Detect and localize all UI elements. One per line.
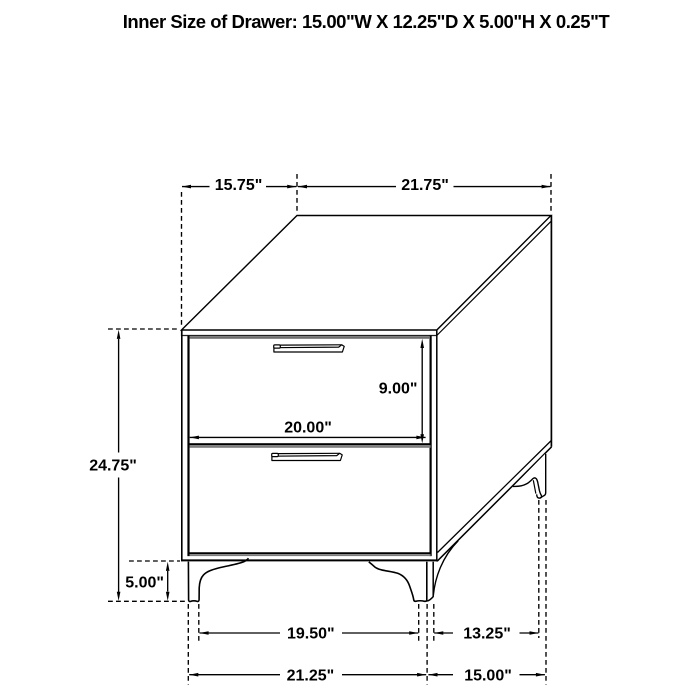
svg-text:Inner Size of Drawer: 15.00"W: Inner Size of Drawer: 15.00"W X 12.25"D … xyxy=(123,11,611,32)
svg-text:20.00": 20.00" xyxy=(284,419,332,436)
svg-text:21.75": 21.75" xyxy=(401,177,449,194)
svg-text:15.00": 15.00" xyxy=(464,668,512,685)
svg-text:24.75": 24.75" xyxy=(89,458,137,475)
svg-text:13.25": 13.25" xyxy=(463,626,511,643)
svg-text:15.75": 15.75" xyxy=(215,177,263,194)
svg-text:21.25": 21.25" xyxy=(287,668,335,685)
svg-text:19.50": 19.50" xyxy=(287,626,335,643)
svg-text:5.00": 5.00" xyxy=(125,575,164,592)
svg-text:9.00": 9.00" xyxy=(379,381,418,398)
